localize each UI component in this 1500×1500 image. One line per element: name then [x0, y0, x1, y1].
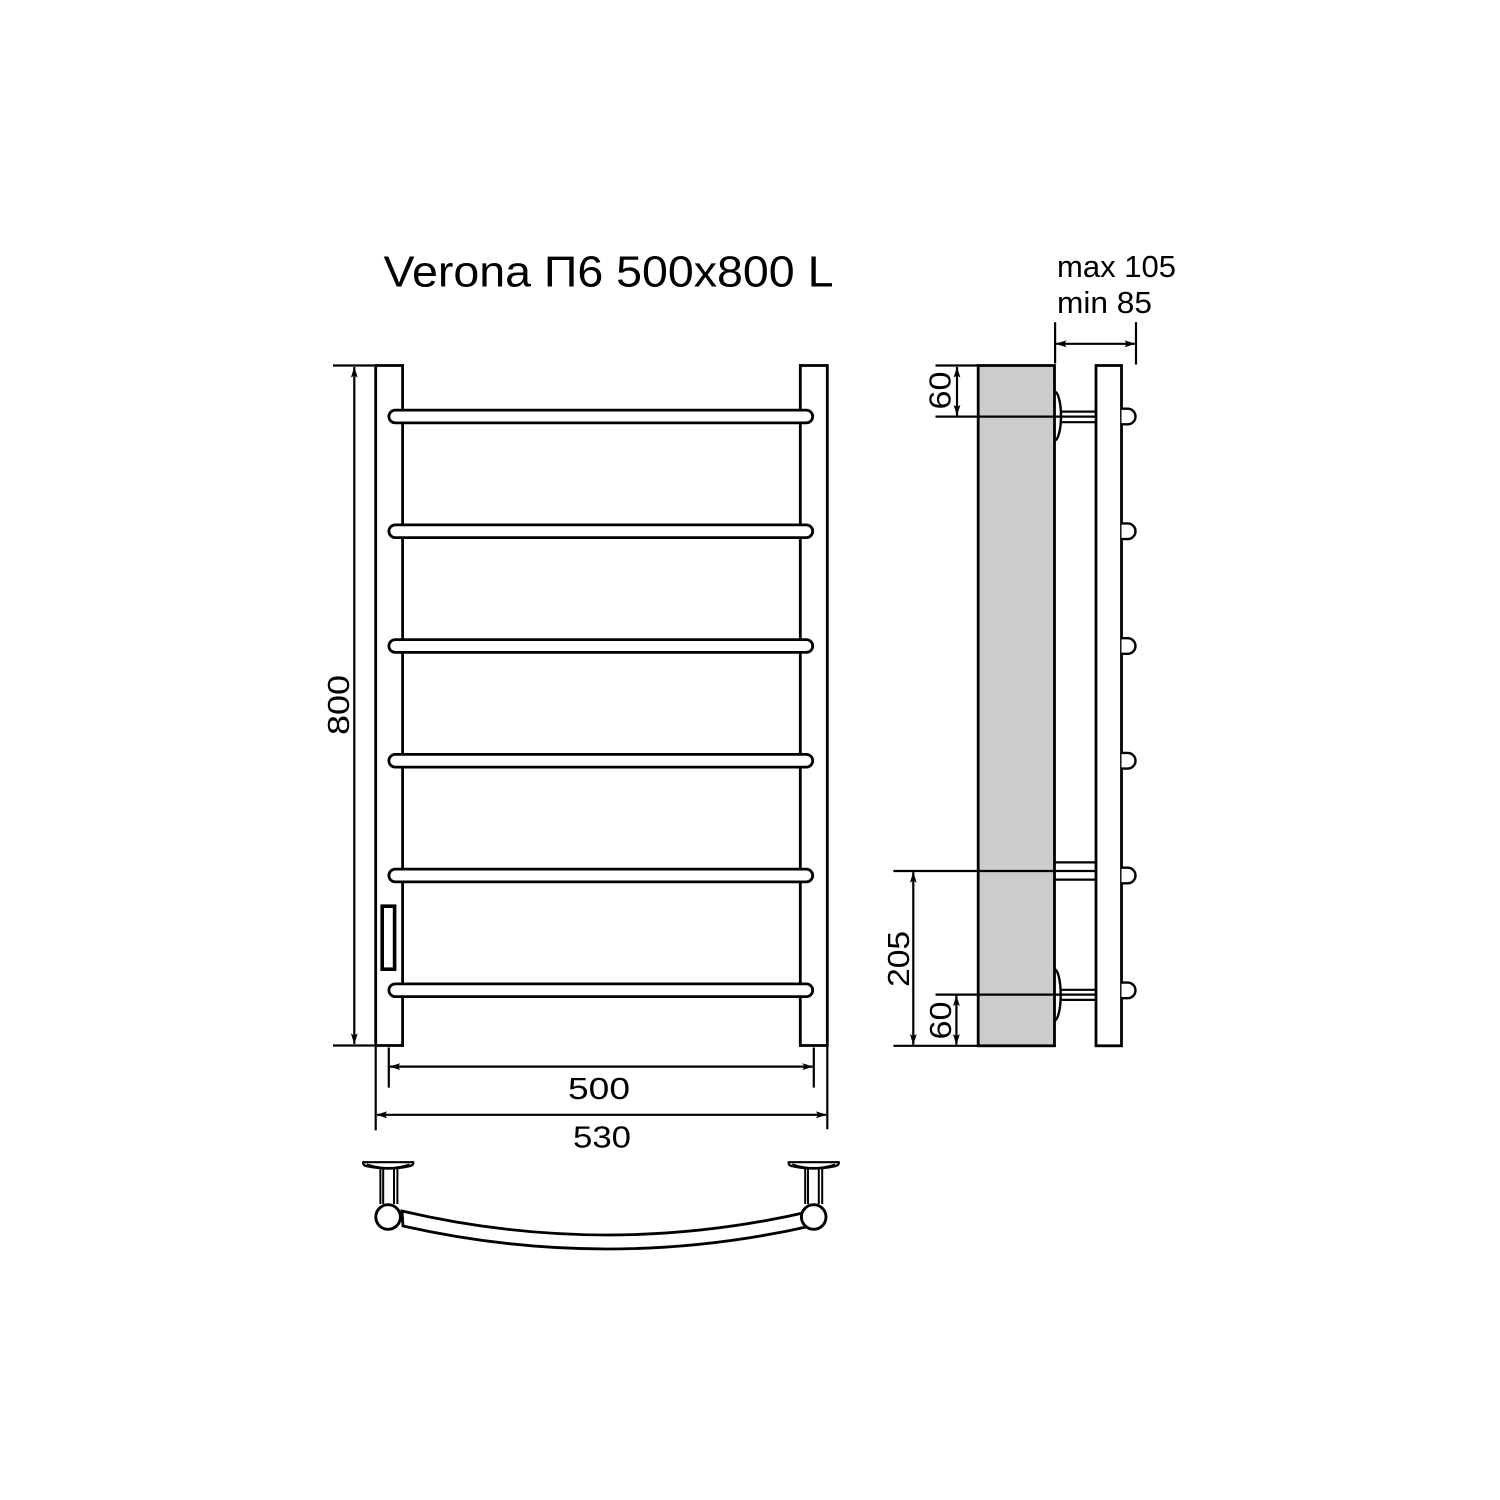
svg-text:500: 500 [568, 1072, 630, 1106]
svg-text:min 85: min 85 [1057, 286, 1152, 320]
svg-text:Verona П6 500x800 L: Verona П6 500x800 L [384, 247, 834, 296]
svg-text:60: 60 [924, 1002, 958, 1040]
svg-text:max 105: max 105 [1057, 250, 1176, 284]
svg-text:205: 205 [882, 931, 916, 987]
svg-text:800: 800 [322, 675, 356, 735]
svg-text:60: 60 [924, 372, 958, 410]
svg-text:530: 530 [573, 1120, 631, 1154]
